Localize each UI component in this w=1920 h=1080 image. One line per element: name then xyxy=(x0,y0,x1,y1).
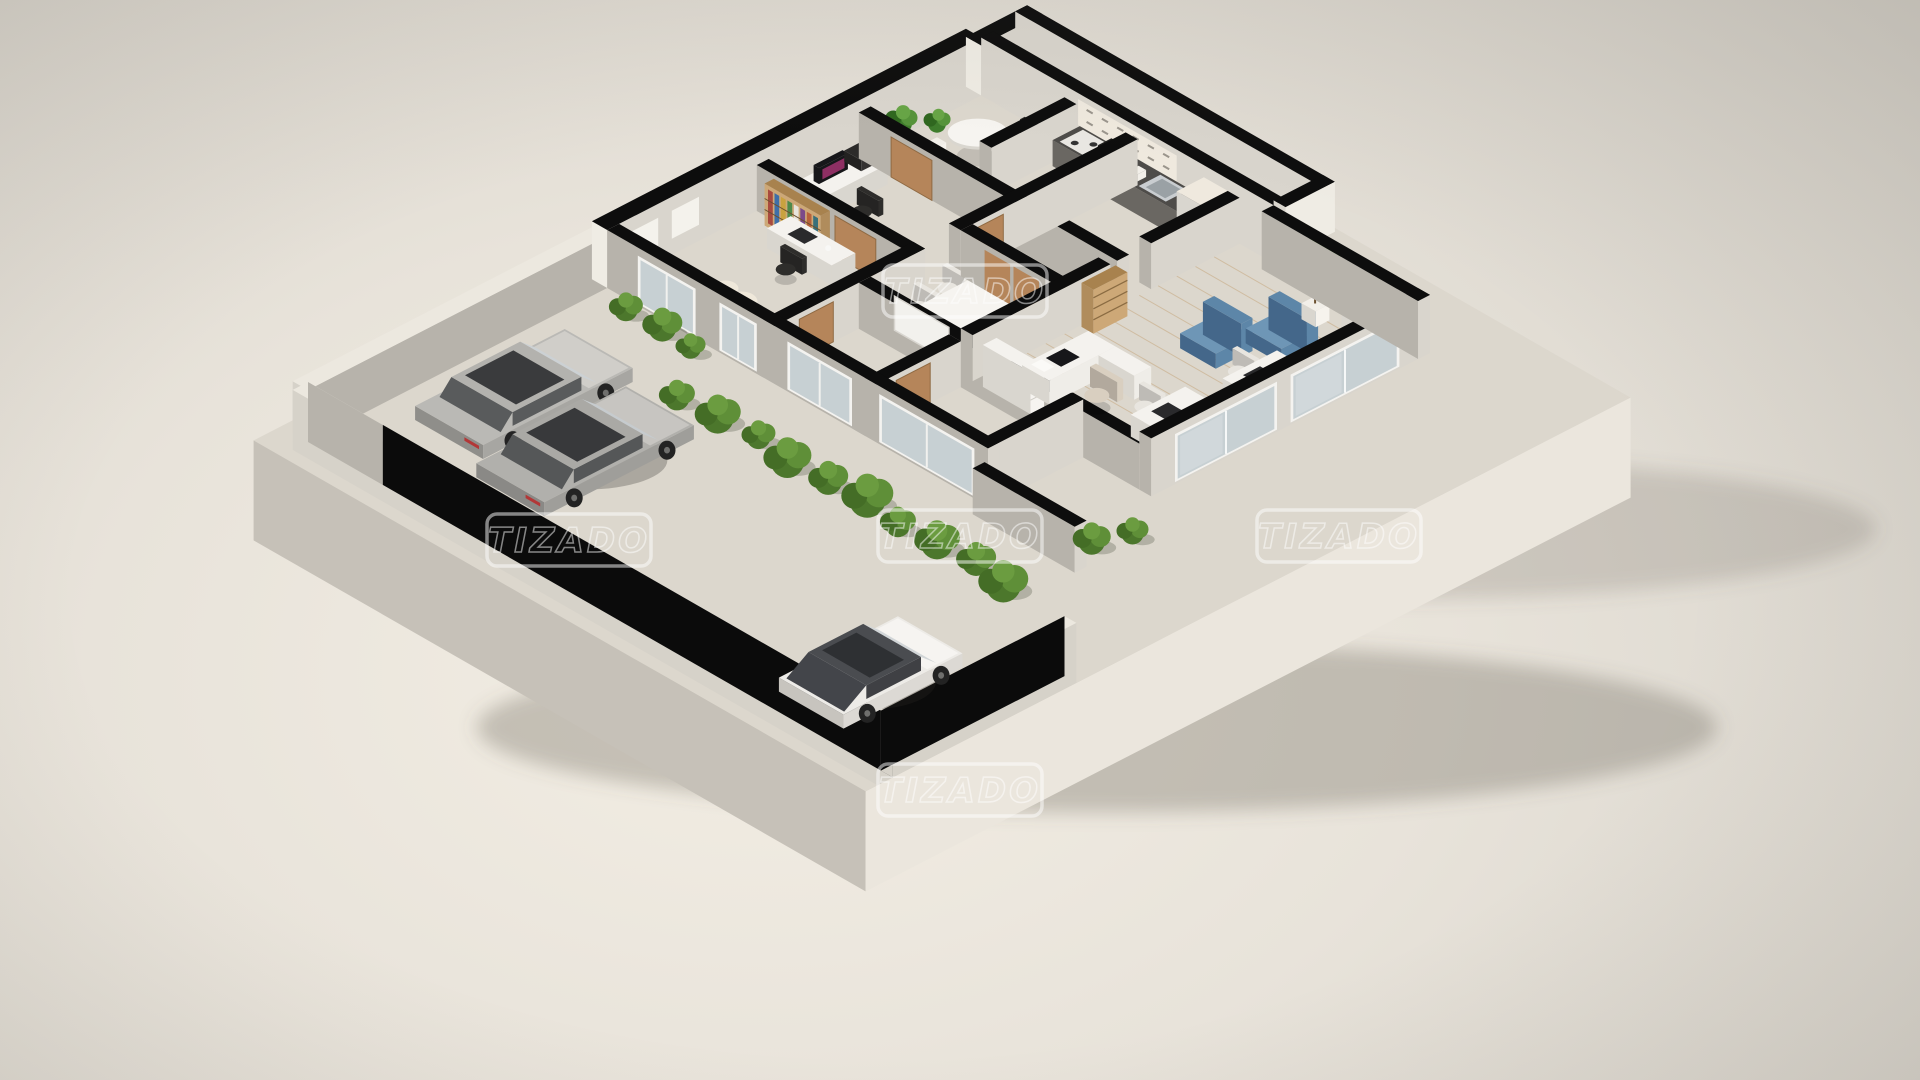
watermark-text: TIZADO xyxy=(879,771,1041,811)
watermark-text: TIZADO xyxy=(488,521,650,561)
watermark-2: TIZADO xyxy=(487,514,651,566)
floorplan-render-stage: TIZADOTIZADOTIZADOTIZADOTIZADO xyxy=(0,0,1920,1080)
watermark-5: TIZADO xyxy=(878,764,1042,816)
watermark-1: TIZADO xyxy=(883,265,1047,317)
floorplan-scene-svg: TIZADOTIZADOTIZADOTIZADOTIZADO xyxy=(0,0,1920,1080)
watermark-text: TIZADO xyxy=(884,272,1046,312)
watermark-4: TIZADO xyxy=(1257,510,1421,562)
watermark-text: TIZADO xyxy=(879,517,1041,557)
watermark-text: TIZADO xyxy=(1258,517,1420,557)
watermark-3: TIZADO xyxy=(878,510,1042,562)
